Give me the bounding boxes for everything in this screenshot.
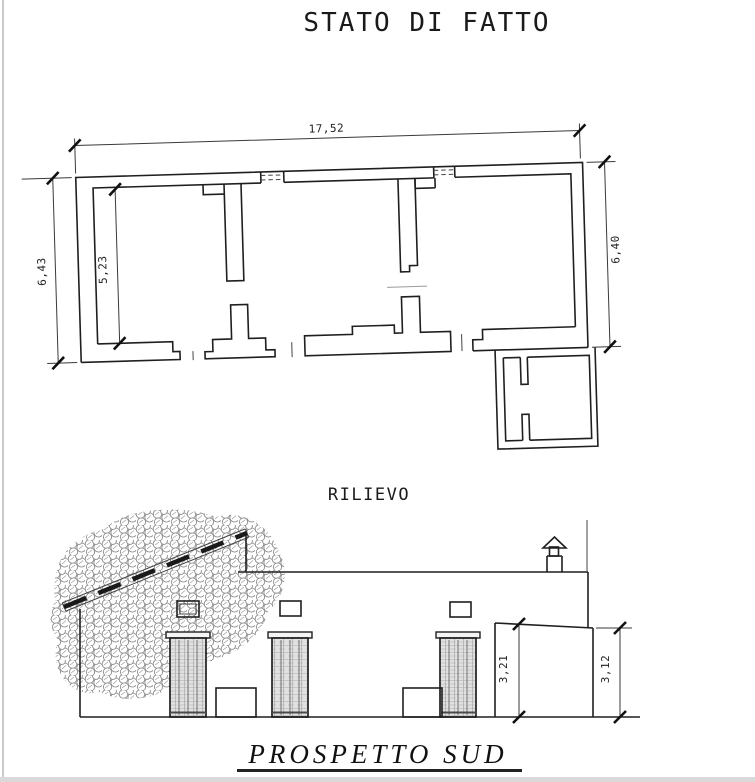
plan-partition-2 bbox=[398, 178, 418, 271]
plan-wall-segment-c bbox=[303, 295, 451, 355]
plan-wall-segment-b bbox=[204, 304, 276, 359]
dim-text-17-52: 17,52 bbox=[308, 122, 344, 136]
plan-wall-segment-a bbox=[81, 342, 180, 363]
dimension-annex-right: 3,12 bbox=[596, 622, 632, 723]
plan-outer-shell bbox=[76, 162, 588, 362]
plan-annex-room bbox=[495, 347, 598, 449]
plan-annex-stub-top bbox=[520, 357, 528, 384]
floor-plan: 17,52 6,43 5,23 6,40 bbox=[20, 113, 628, 463]
title-stato-di-fatto: STATO DI FATTO bbox=[303, 8, 550, 38]
plan-door-jamb-3 bbox=[462, 334, 463, 351]
dimension-interior-left-room: 5,23 bbox=[94, 183, 126, 350]
plan-annex-stub-bottom bbox=[522, 414, 530, 440]
plan-wall-segment-d bbox=[472, 326, 588, 350]
facade-roofline bbox=[238, 572, 588, 628]
dimension-height-right: 6,40 bbox=[586, 155, 625, 353]
title-prospetto-sud: PROSPETTO SUD bbox=[247, 739, 507, 769]
dim-text-3-12: 3,12 bbox=[599, 655, 612, 684]
elevation-drawing: 3,21 3,12 bbox=[51, 509, 641, 723]
ground-box-2 bbox=[403, 688, 442, 717]
door-1 bbox=[166, 632, 210, 717]
window-2 bbox=[280, 601, 301, 616]
plan-inner-shell bbox=[93, 174, 575, 344]
plan-threshold-line bbox=[387, 286, 427, 287]
dim-text-3-21: 3,21 bbox=[497, 655, 510, 684]
dim-text-6-43: 6,43 bbox=[35, 257, 49, 286]
dimension-annex-left: 3,21 bbox=[497, 618, 525, 723]
plan-window-opening-1 bbox=[261, 171, 284, 183]
page-bottom-edge bbox=[0, 777, 755, 782]
window-3 bbox=[450, 602, 471, 617]
ground-box-1 bbox=[216, 688, 256, 717]
plan-window-opening-2 bbox=[434, 166, 455, 178]
elevation-title-block: PROSPETTO SUD bbox=[237, 739, 522, 771]
dim-text-6-40: 6,40 bbox=[609, 235, 623, 264]
tree-foliage bbox=[51, 509, 285, 698]
architectural-drawing: STATO DI FATTO bbox=[0, 0, 755, 782]
chimney bbox=[543, 537, 566, 572]
dimension-height-left: 6,43 bbox=[22, 172, 78, 370]
plan-pilasters bbox=[203, 178, 435, 195]
dim-text-5-23: 5,23 bbox=[96, 255, 110, 284]
door-2 bbox=[268, 632, 312, 717]
label-rilievo: RILIEVO bbox=[328, 485, 410, 505]
plan-partition-1 bbox=[224, 184, 244, 281]
drawing-sheet: STATO DI FATTO bbox=[0, 0, 755, 782]
